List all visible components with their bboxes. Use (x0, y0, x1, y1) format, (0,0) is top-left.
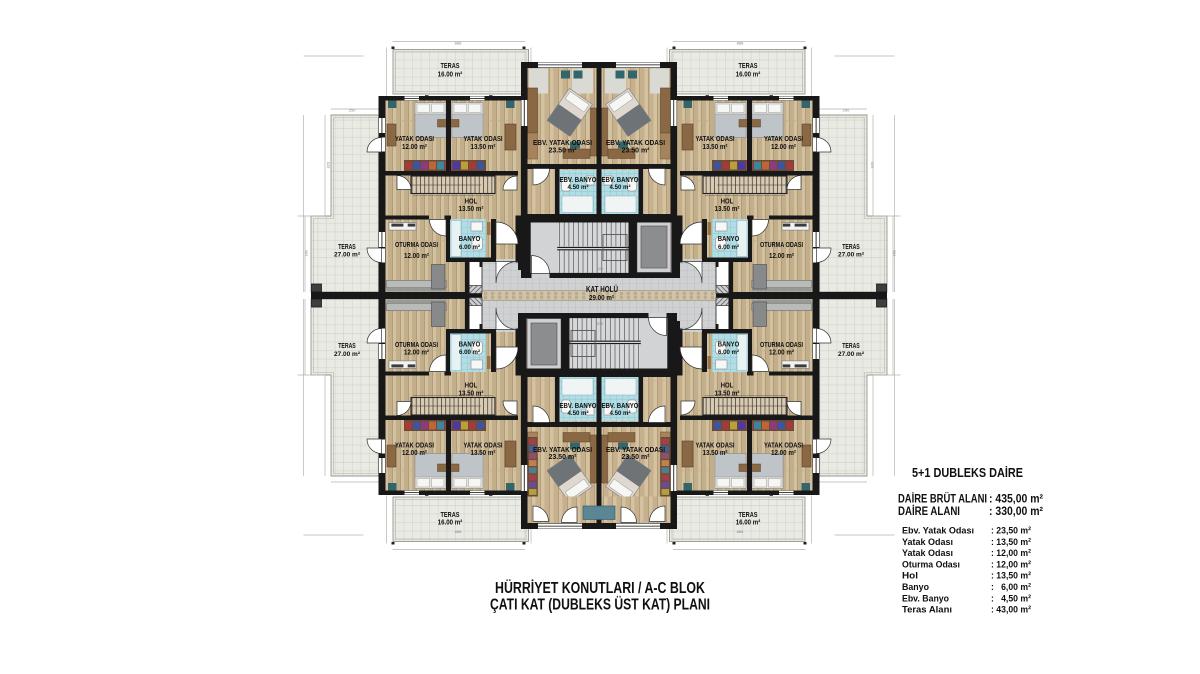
svg-text:: 12,00 m²: : 12,00 m² (991, 559, 1031, 570)
svg-text:13.50 m²: 13.50 m² (715, 391, 741, 398)
svg-text:BANYO: BANYO (718, 340, 740, 349)
svg-text:EBV. BANYO: EBV. BANYO (602, 177, 639, 184)
svg-text:: 13,50 m²: : 13,50 m² (991, 537, 1031, 548)
svg-text:12.00 m²: 12.00 m² (404, 253, 430, 260)
svg-text:12.00 m²: 12.00 m² (771, 450, 797, 457)
svg-text:OTURMA ODASI: OTURMA ODASI (760, 340, 803, 349)
svg-text:EBV. BANYO: EBV. BANYO (602, 403, 639, 410)
svg-text:12.00 m²: 12.00 m² (771, 144, 797, 151)
svg-text:HÜRRİYET KONUTLARI / A-C BLOK: HÜRRİYET KONUTLARI / A-C BLOK (495, 580, 706, 597)
svg-text:: 6,00 m²: : 6,00 m² (991, 582, 1031, 593)
svg-text:EBV. YATAK ODASI: EBV. YATAK ODASI (533, 445, 592, 454)
svg-text:5+1 DUBLEKS DAİRE: 5+1 DUBLEKS DAİRE (912, 465, 1023, 480)
svg-text:888: 888 (455, 529, 462, 534)
svg-text:TERAS: TERAS (842, 244, 860, 251)
svg-text:6.00 m²: 6.00 m² (718, 244, 740, 251)
svg-text:6.00 m²: 6.00 m² (459, 244, 481, 251)
svg-text:TERAS: TERAS (739, 61, 758, 70)
svg-text:Yatak Odası: Yatak Odası (902, 537, 953, 548)
svg-text:ÇATI KAT (DUBLEKS ÜST KAT) PLA: ÇATI KAT (DUBLEKS ÜST KAT) PLANI (490, 597, 710, 614)
svg-text:13.50 m²: 13.50 m² (471, 144, 497, 151)
svg-text:TERAS: TERAS (338, 343, 356, 350)
svg-text:27.00 m²: 27.00 m² (334, 252, 361, 259)
svg-text:363: 363 (892, 250, 897, 257)
svg-text:27.00 m²: 27.00 m² (334, 351, 361, 358)
svg-text:HOL: HOL (465, 197, 478, 206)
svg-text:12.00 m²: 12.00 m² (402, 144, 428, 151)
svg-text:HOL: HOL (465, 381, 478, 390)
svg-text:525: 525 (870, 162, 875, 169)
svg-text:EBV. BANYO: EBV. BANYO (560, 403, 597, 410)
svg-text:: 13,50 m²: : 13,50 m² (991, 571, 1031, 582)
svg-text:Hol: Hol (902, 571, 918, 582)
svg-text:4.50 m²: 4.50 m² (568, 410, 590, 417)
svg-text:16.00 m²: 16.00 m² (736, 72, 761, 79)
svg-text:OTURMA ODASI: OTURMA ODASI (395, 240, 438, 249)
svg-text:YATAK ODASI: YATAK ODASI (464, 134, 503, 143)
svg-text:TERAS: TERAS (441, 61, 460, 70)
svg-text:: 23,50 m²: : 23,50 m² (991, 526, 1031, 537)
svg-text:YATAK ODASI: YATAK ODASI (464, 441, 503, 450)
svg-text:DAİRE ALANI: DAİRE ALANI (898, 503, 960, 518)
svg-text:BANYO: BANYO (718, 234, 740, 243)
svg-text:EBV. YATAK ODASI: EBV. YATAK ODASI (606, 138, 665, 147)
svg-text:6.00 m²: 6.00 m² (718, 349, 740, 356)
svg-text:TERAS: TERAS (842, 343, 860, 350)
svg-text:23.50 m²: 23.50 m² (622, 148, 651, 155)
svg-text:4.50 m²: 4.50 m² (610, 410, 632, 417)
svg-text:TERAS: TERAS (338, 244, 356, 251)
svg-text:13.50 m²: 13.50 m² (471, 450, 497, 457)
svg-text:: 330,00 m²: : 330,00 m² (989, 504, 1043, 518)
svg-text:: 43,00 m²: : 43,00 m² (991, 605, 1031, 616)
svg-text:530: 530 (597, 266, 604, 271)
svg-text:12.00 m²: 12.00 m² (402, 450, 428, 457)
svg-text:: 12,00 m²: : 12,00 m² (991, 548, 1031, 559)
svg-text:EBV. YATAK ODASI: EBV. YATAK ODASI (533, 138, 592, 147)
svg-text:Oturma Odası: Oturma Odası (902, 559, 960, 570)
svg-text:BANYO: BANYO (459, 234, 481, 243)
svg-text:530: 530 (597, 321, 604, 326)
svg-text:13.50 m²: 13.50 m² (715, 206, 741, 213)
svg-text:888: 888 (737, 529, 744, 534)
svg-text:13.50 m²: 13.50 m² (703, 450, 729, 457)
svg-text:Ebv. Banyo: Ebv. Banyo (902, 593, 949, 604)
svg-text:YATAK ODASI: YATAK ODASI (395, 134, 434, 143)
svg-text:23.50 m²: 23.50 m² (622, 454, 651, 461)
svg-text:27.00 m²: 27.00 m² (838, 351, 865, 358)
svg-text:12.00 m²: 12.00 m² (769, 350, 795, 357)
svg-text:: 4,50 m²: : 4,50 m² (991, 593, 1031, 604)
svg-text:29.00 m²: 29.00 m² (589, 293, 614, 302)
svg-text:OTURMA ODASI: OTURMA ODASI (760, 240, 803, 249)
svg-text:TERAS: TERAS (441, 510, 460, 519)
svg-text:HOL: HOL (721, 381, 734, 390)
svg-text:TERAS: TERAS (739, 510, 758, 519)
svg-text:Yatak Odası: Yatak Odası (902, 548, 953, 559)
svg-text:4.50 m²: 4.50 m² (610, 184, 632, 191)
svg-text:23.50 m²: 23.50 m² (549, 148, 578, 155)
svg-text:4.50 m²: 4.50 m² (568, 184, 590, 191)
svg-text:6.00 m²: 6.00 m² (459, 349, 481, 356)
svg-text:16.00 m²: 16.00 m² (736, 520, 761, 527)
svg-text:13.50 m²: 13.50 m² (459, 391, 485, 398)
svg-text:Ebv. Yatak Odası: Ebv. Yatak Odası (902, 526, 974, 537)
svg-text:HOL: HOL (721, 197, 734, 206)
svg-text:12.00 m²: 12.00 m² (769, 253, 795, 260)
svg-text:YATAK ODASI: YATAK ODASI (696, 134, 735, 143)
svg-text:13.50 m²: 13.50 m² (459, 206, 485, 213)
svg-text:OTURMA ODASI: OTURMA ODASI (395, 340, 438, 349)
svg-text:YATAK ODASI: YATAK ODASI (696, 441, 735, 450)
svg-text:YATAK ODASI: YATAK ODASI (764, 441, 803, 450)
svg-text:888: 888 (455, 41, 462, 46)
svg-text:250: 250 (349, 108, 356, 113)
svg-text:16.00 m²: 16.00 m² (438, 520, 463, 527)
svg-text:YATAK ODASI: YATAK ODASI (764, 134, 803, 143)
svg-text:27.00 m²: 27.00 m² (838, 252, 865, 259)
svg-text:EBV. YATAK ODASI: EBV. YATAK ODASI (606, 445, 665, 454)
svg-text:BANYO: BANYO (459, 340, 481, 349)
svg-text:Banyo: Banyo (902, 582, 929, 593)
svg-text:12.00 m²: 12.00 m² (404, 350, 430, 357)
svg-text:Teras Alanı: Teras Alanı (902, 605, 952, 616)
svg-text:YATAK ODASI: YATAK ODASI (395, 441, 434, 450)
svg-text:525: 525 (326, 162, 331, 169)
svg-text:250: 250 (843, 108, 850, 113)
svg-text:EBV. BANYO: EBV. BANYO (560, 177, 597, 184)
svg-text:23.50 m²: 23.50 m² (549, 454, 578, 461)
svg-text:16.00 m²: 16.00 m² (438, 72, 463, 79)
svg-text:363: 363 (304, 250, 309, 257)
svg-text:13.50 m²: 13.50 m² (703, 144, 729, 151)
svg-text:888: 888 (737, 41, 744, 46)
